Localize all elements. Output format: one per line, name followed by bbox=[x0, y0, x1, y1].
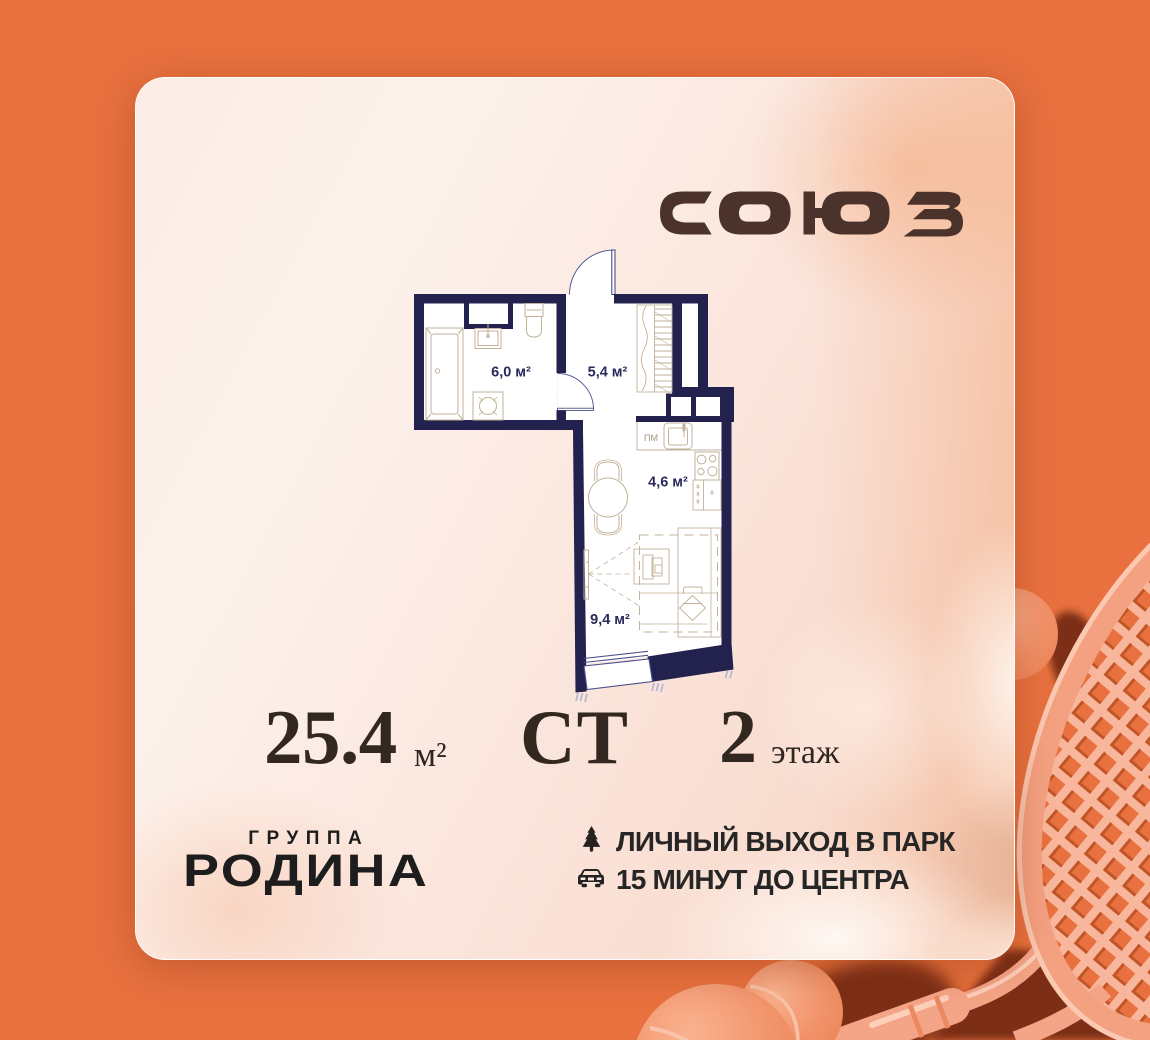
svg-text:4,6 м²: 4,6 м² bbox=[648, 475, 688, 491]
svg-text:9,4 м²: 9,4 м² bbox=[590, 612, 630, 628]
svg-text:6,0 м²: 6,0 м² bbox=[491, 365, 531, 381]
svg-text:ПМ: ПМ bbox=[644, 433, 658, 443]
svg-text:5,4 м²: 5,4 м² bbox=[588, 365, 628, 381]
